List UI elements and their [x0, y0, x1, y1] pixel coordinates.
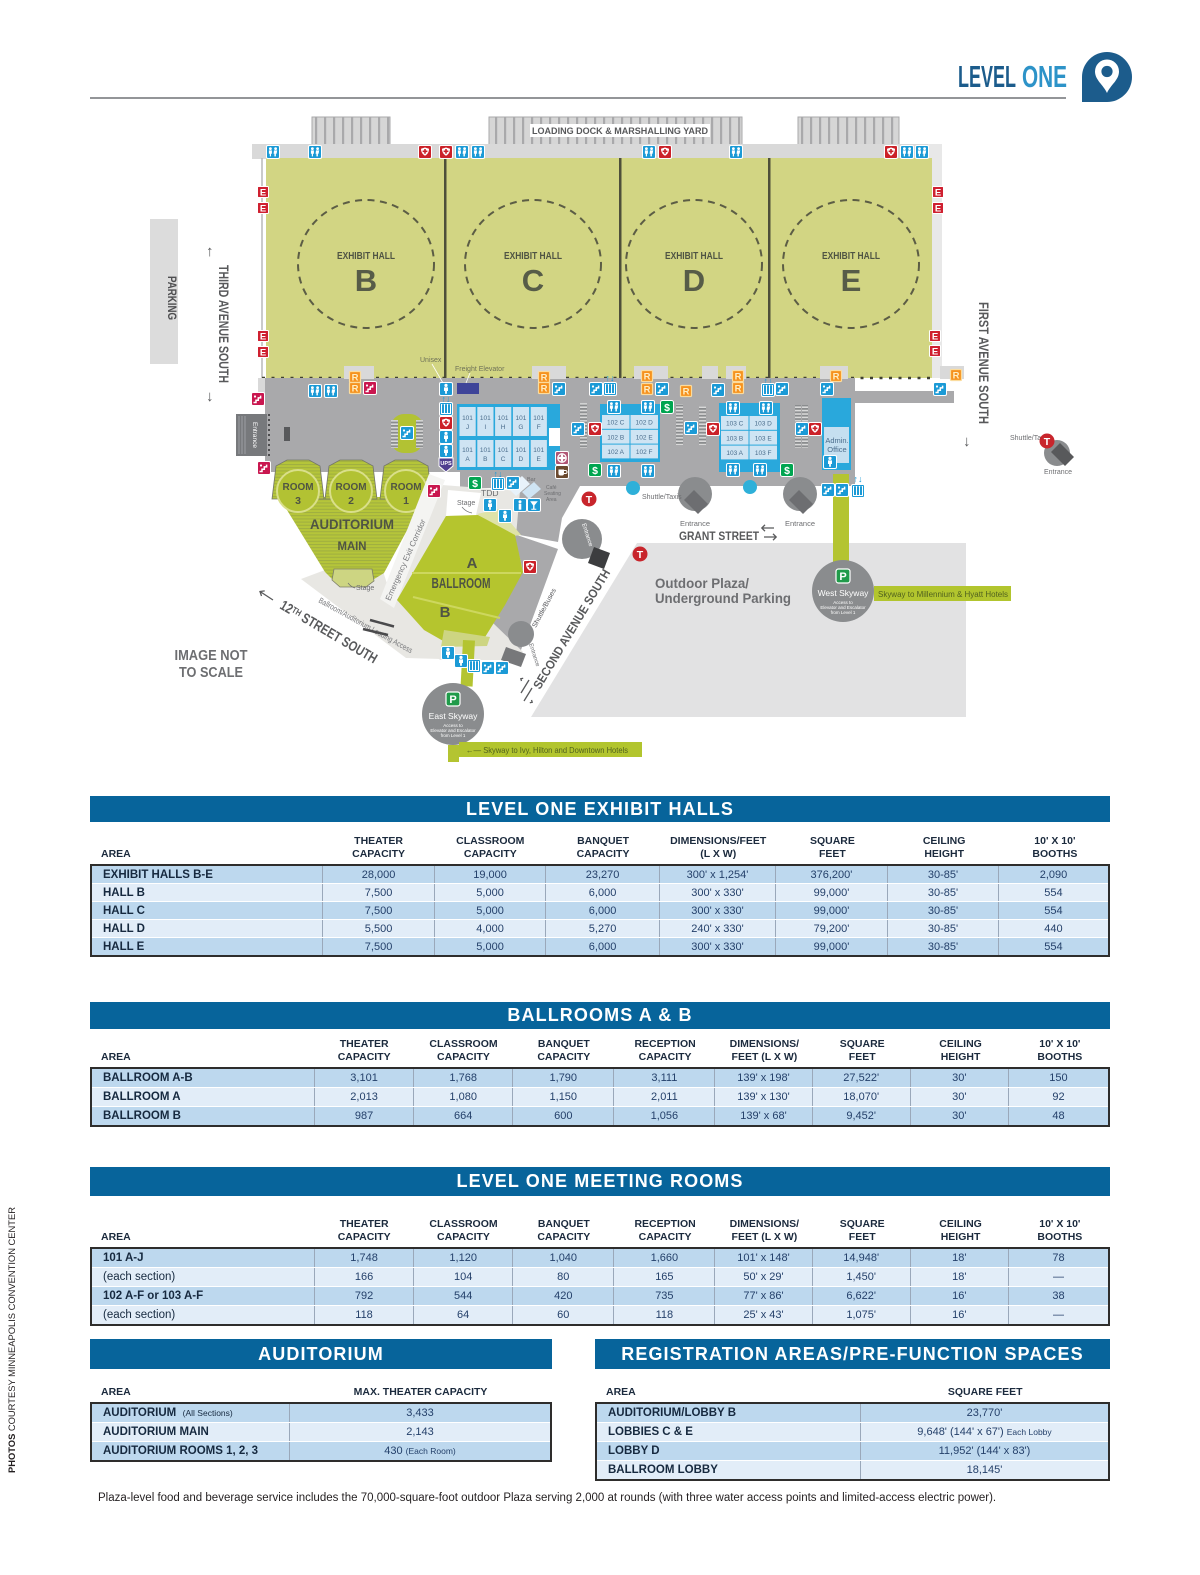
svg-text:102 D: 102 D — [636, 420, 654, 427]
svg-text:Stage: Stage — [356, 585, 374, 592]
svg-text:101: 101 — [462, 415, 473, 422]
svg-text:103 A: 103 A — [726, 450, 743, 457]
svg-text:103 B: 103 B — [726, 435, 743, 442]
svg-text:BALLROOM: BALLROOM — [432, 575, 491, 592]
svg-text:Entrance: Entrance — [1044, 469, 1072, 476]
svg-text:101: 101 — [462, 447, 473, 454]
svg-text:103 C: 103 C — [726, 421, 744, 428]
svg-text:West Skyway: West Skyway — [818, 588, 870, 598]
svg-text:EXHIBIT HALL: EXHIBIT HALL — [504, 250, 562, 262]
svg-text:2: 2 — [348, 495, 354, 507]
svg-text:D: D — [683, 263, 705, 298]
svg-text:↓: ↓ — [963, 433, 971, 450]
svg-text:←— Skyway to Ivy, Hilton and D: ←— Skyway to Ivy, Hilton and Downtown Ho… — [466, 745, 628, 755]
svg-text:101: 101 — [515, 415, 526, 422]
svg-text:Entrance: Entrance — [680, 519, 710, 528]
svg-text:ONE: ONE — [1022, 59, 1067, 94]
svg-text:C: C — [522, 263, 544, 298]
svg-text:A: A — [465, 456, 470, 463]
svg-text:Entrance: Entrance — [251, 422, 258, 448]
svg-text:102 C: 102 C — [607, 420, 625, 427]
svg-text:IMAGE NOT: IMAGE NOT — [175, 648, 248, 664]
svg-text:Underground Parking: Underground Parking — [655, 590, 791, 606]
svg-text:LEVEL: LEVEL — [958, 59, 1016, 94]
svg-text:J: J — [466, 424, 469, 431]
svg-text:LOADING DOCK & MARSHALLING YAR: LOADING DOCK & MARSHALLING YARD — [532, 126, 708, 137]
svg-text:Bar: Bar — [527, 477, 536, 483]
svg-text:E: E — [537, 456, 542, 463]
svg-text:FIRST AVENUE SOUTH: FIRST AVENUE SOUTH — [976, 302, 992, 424]
svg-text:102 E: 102 E — [636, 434, 654, 441]
svg-text:Entrance: Entrance — [785, 519, 815, 528]
svg-text:101: 101 — [498, 447, 509, 454]
svg-text:101: 101 — [515, 447, 526, 454]
svg-text:GRANT STREET: GRANT STREET — [679, 529, 760, 543]
svg-text:Office: Office — [827, 445, 846, 454]
svg-text:EXHIBIT HALL: EXHIBIT HALL — [822, 250, 880, 262]
svg-text:D: D — [519, 456, 524, 463]
svg-text:Outdoor Plaza/: Outdoor Plaza/ — [655, 575, 749, 591]
svg-text:East Skyway: East Skyway — [429, 711, 478, 721]
svg-text:103 E: 103 E — [755, 435, 773, 442]
svg-text:102 B: 102 B — [607, 434, 624, 441]
svg-text:3: 3 — [295, 495, 301, 507]
svg-text:B: B — [483, 456, 487, 463]
svg-text:Skyway to Millennium & Hyatt H: Skyway to Millennium & Hyatt Hotels — [878, 590, 1008, 599]
svg-text:MAIN: MAIN — [338, 541, 367, 553]
svg-text:B: B — [440, 604, 451, 621]
svg-text:Area: Area — [546, 497, 557, 503]
svg-text:103 F: 103 F — [755, 450, 772, 457]
svg-text:102 F: 102 F — [636, 449, 653, 456]
svg-text:Admin.: Admin. — [825, 436, 848, 445]
svg-text:ROOM: ROOM — [391, 481, 422, 493]
svg-text:↓: ↓ — [206, 388, 214, 405]
svg-text:EXHIBIT HALL: EXHIBIT HALL — [337, 250, 395, 262]
svg-text:F: F — [537, 424, 541, 431]
svg-text:B: B — [355, 263, 377, 298]
svg-text:E: E — [841, 263, 862, 298]
svg-text:TO SCALE: TO SCALE — [179, 665, 243, 681]
svg-text:Unisex: Unisex — [420, 357, 442, 364]
svg-text:from Level 1: from Level 1 — [831, 610, 856, 615]
svg-text:1: 1 — [403, 495, 409, 507]
svg-text:AUDITORIUM: AUDITORIUM — [310, 517, 394, 532]
svg-text:ROOM: ROOM — [283, 481, 314, 493]
svg-text:101: 101 — [533, 415, 544, 422]
svg-text:EXHIBIT HALL: EXHIBIT HALL — [665, 250, 723, 262]
svg-text:↑: ↑ — [206, 243, 214, 260]
svg-text:H: H — [501, 424, 506, 431]
svg-text:101: 101 — [498, 415, 509, 422]
svg-text:101: 101 — [480, 415, 491, 422]
svg-text:101: 101 — [480, 447, 491, 454]
svg-text:Stage: Stage — [457, 500, 475, 507]
svg-text:PARKING: PARKING — [165, 276, 179, 320]
svg-text:103 D: 103 D — [755, 421, 773, 428]
svg-text:PHOTOS COURTESY MINNEAPOLIS CO: PHOTOS COURTESY MINNEAPOLIS CONVENTION C… — [7, 1206, 17, 1473]
svg-text:ROOM: ROOM — [336, 481, 367, 493]
svg-text:G: G — [518, 424, 523, 431]
svg-text:I: I — [484, 424, 486, 431]
svg-text:from Level 1: from Level 1 — [441, 733, 466, 738]
svg-text:Entrance: Entrance — [527, 643, 540, 668]
svg-text:C: C — [501, 456, 506, 463]
svg-text:A: A — [467, 555, 478, 572]
svg-text:THIRD AVENUE SOUTH: THIRD AVENUE SOUTH — [216, 265, 232, 383]
svg-text:101: 101 — [533, 447, 544, 454]
svg-text:102 A: 102 A — [607, 449, 624, 456]
svg-text:Shuttle/Taxis: Shuttle/Taxis — [642, 494, 682, 501]
svg-text:Freight Elevator: Freight Elevator — [455, 366, 505, 373]
